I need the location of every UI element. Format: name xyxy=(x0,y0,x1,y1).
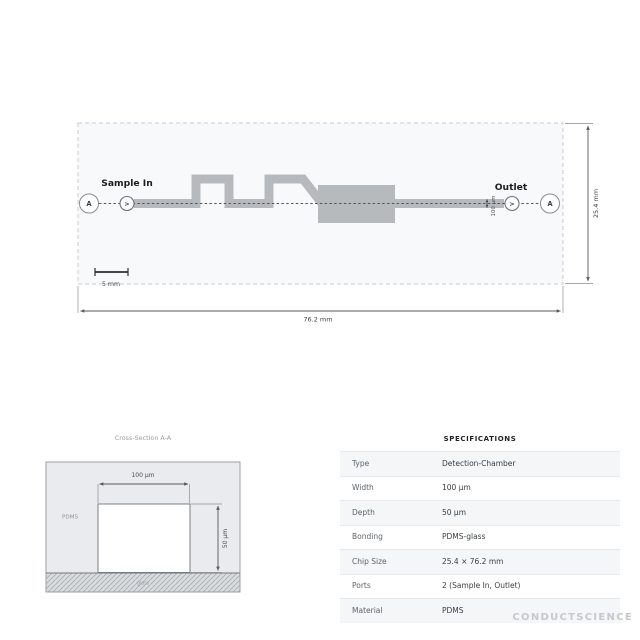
spec-row-type: Type Detection-Chamber xyxy=(340,451,620,476)
section-marker-left-label: A xyxy=(86,200,92,208)
spec-row-depth: Depth 50 µm xyxy=(340,500,620,525)
glass-label: glass xyxy=(137,581,150,587)
chip-height-label: 25.4 mm xyxy=(592,189,600,218)
sample-in-label: Sample In xyxy=(101,178,153,189)
cs-width-label: 100 µm xyxy=(131,472,154,479)
spec-row-bonding: Bonding PDMS-glass xyxy=(340,525,620,550)
outlet-label: Outlet xyxy=(495,182,528,193)
spec-label: Chip Size xyxy=(352,558,442,567)
inlet-port-arrow-icon: > xyxy=(124,200,129,208)
spec-label: Depth xyxy=(352,509,442,518)
specifications-title: SPECIFICATIONS xyxy=(340,435,620,443)
outlet-port-arrow-icon: > xyxy=(509,200,514,208)
specifications-panel: SPECIFICATIONS Type Detection-Chamber Wi… xyxy=(340,430,620,623)
cs-depth-label: 50 µm xyxy=(222,529,229,548)
spec-label: Width xyxy=(352,484,442,493)
cross-section-title: Cross-Section A-A xyxy=(115,434,172,442)
spec-value: 50 µm xyxy=(442,509,608,518)
spec-label: Type xyxy=(352,460,442,469)
channel-width-label: 100 µm xyxy=(491,195,497,216)
conductscience-watermark: CONDUCTSCIENCE xyxy=(512,612,633,623)
spec-label: Material xyxy=(352,607,442,616)
section-marker-right-label: A xyxy=(547,200,553,208)
spec-label: Ports xyxy=(352,582,442,591)
spec-label: Bonding xyxy=(352,533,442,542)
spec-value: 2 (Sample In, Outlet) xyxy=(442,582,608,591)
spec-value: Detection-Chamber xyxy=(442,460,608,469)
spec-row-width: Width 100 µm xyxy=(340,476,620,501)
pdms-label: PDMS xyxy=(62,515,79,521)
spec-row-chip-size: Chip Size 25.4 × 76.2 mm xyxy=(340,549,620,574)
detection-chamber xyxy=(318,185,395,223)
channel-cavity xyxy=(98,504,190,573)
chip-width-label: 76.2 mm xyxy=(303,316,332,324)
spec-value: 100 µm xyxy=(442,484,608,493)
specifications-table: Type Detection-Chamber Width 100 µm Dept… xyxy=(340,451,620,623)
spec-value: 25.4 × 76.2 mm xyxy=(442,558,608,567)
spec-row-ports: Ports 2 (Sample In, Outlet) xyxy=(340,574,620,599)
spec-value: PDMS-glass xyxy=(442,533,608,542)
cross-section-view: Cross-Section A-A 100 µm 50 µm PDMS glas… xyxy=(46,434,240,592)
scale-bar-label: 5 mm xyxy=(102,281,120,288)
chip-top-view: > > A A Sample In Outlet 100 µm 25.4 mm … xyxy=(78,123,600,324)
